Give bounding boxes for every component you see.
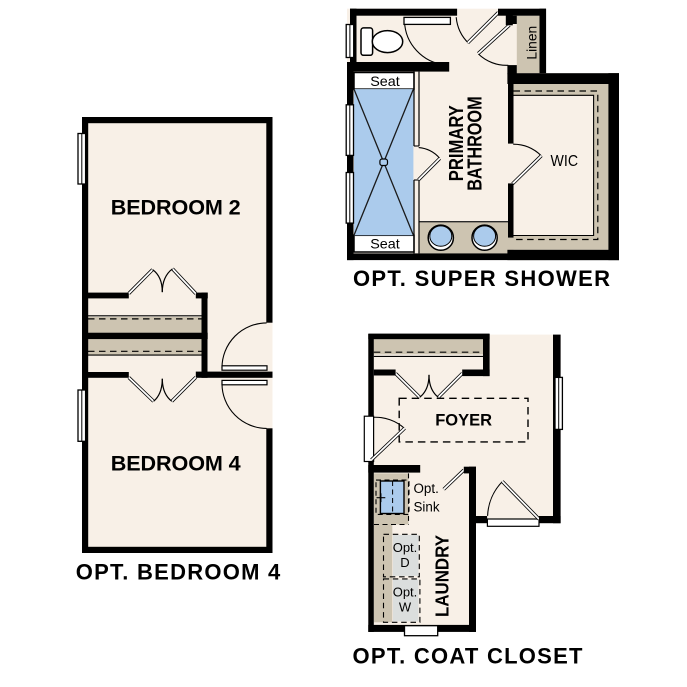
svg-text:Seat: Seat [370, 236, 400, 252]
svg-text:D: D [400, 555, 409, 570]
svg-text:Seat: Seat [370, 73, 400, 89]
svg-text:OPT. BEDROOM 4: OPT. BEDROOM 4 [76, 560, 281, 585]
svg-text:Sink: Sink [414, 500, 440, 515]
svg-text:BEDROOM 4: BEDROOM 4 [111, 450, 241, 475]
svg-text:BATHROOM: BATHROOM [465, 96, 487, 190]
svg-text:LAUNDRY: LAUNDRY [433, 535, 453, 617]
svg-text:OPT. COAT CLOSET: OPT. COAT CLOSET [353, 643, 584, 668]
svg-text:BEDROOM 2: BEDROOM 2 [111, 195, 241, 220]
svg-text:W: W [399, 600, 412, 615]
svg-text:Opt.: Opt. [393, 585, 418, 600]
svg-text:Linen: Linen [523, 26, 539, 60]
svg-text:FOYER: FOYER [435, 411, 492, 430]
svg-text:Opt.: Opt. [393, 540, 418, 555]
svg-text:OPT. SUPER SHOWER: OPT. SUPER SHOWER [353, 266, 610, 291]
svg-text:WIC: WIC [551, 153, 579, 170]
svg-text:Opt.: Opt. [414, 481, 439, 496]
